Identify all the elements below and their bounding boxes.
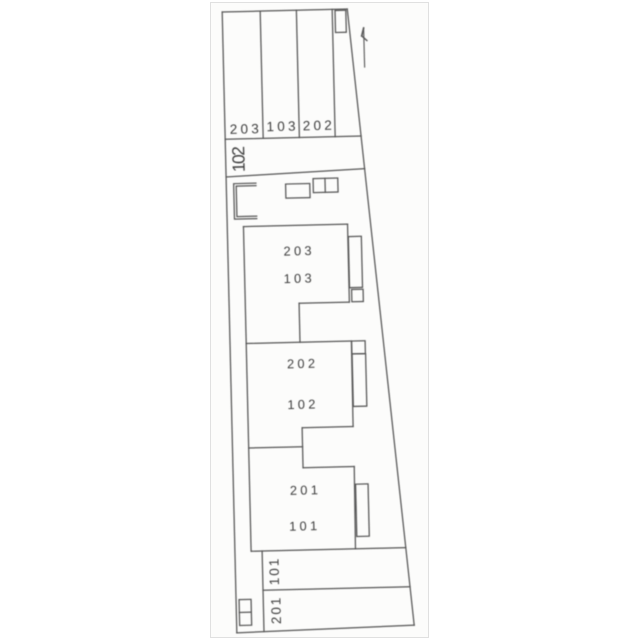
svg-text:201: 201: [290, 482, 318, 498]
svg-text:202: 202: [287, 356, 315, 372]
svg-text:203: 203: [283, 243, 311, 259]
svg-text:101: 101: [266, 559, 282, 586]
svg-text:103: 103: [283, 270, 311, 286]
svg-text:201: 201: [268, 597, 284, 624]
svg-text:102: 102: [228, 146, 249, 172]
svg-text:101: 101: [289, 518, 317, 534]
svg-text:103: 103: [266, 119, 295, 135]
svg-text:203: 203: [230, 121, 259, 137]
svg-text:102: 102: [287, 397, 315, 413]
svg-text:202: 202: [303, 118, 332, 134]
